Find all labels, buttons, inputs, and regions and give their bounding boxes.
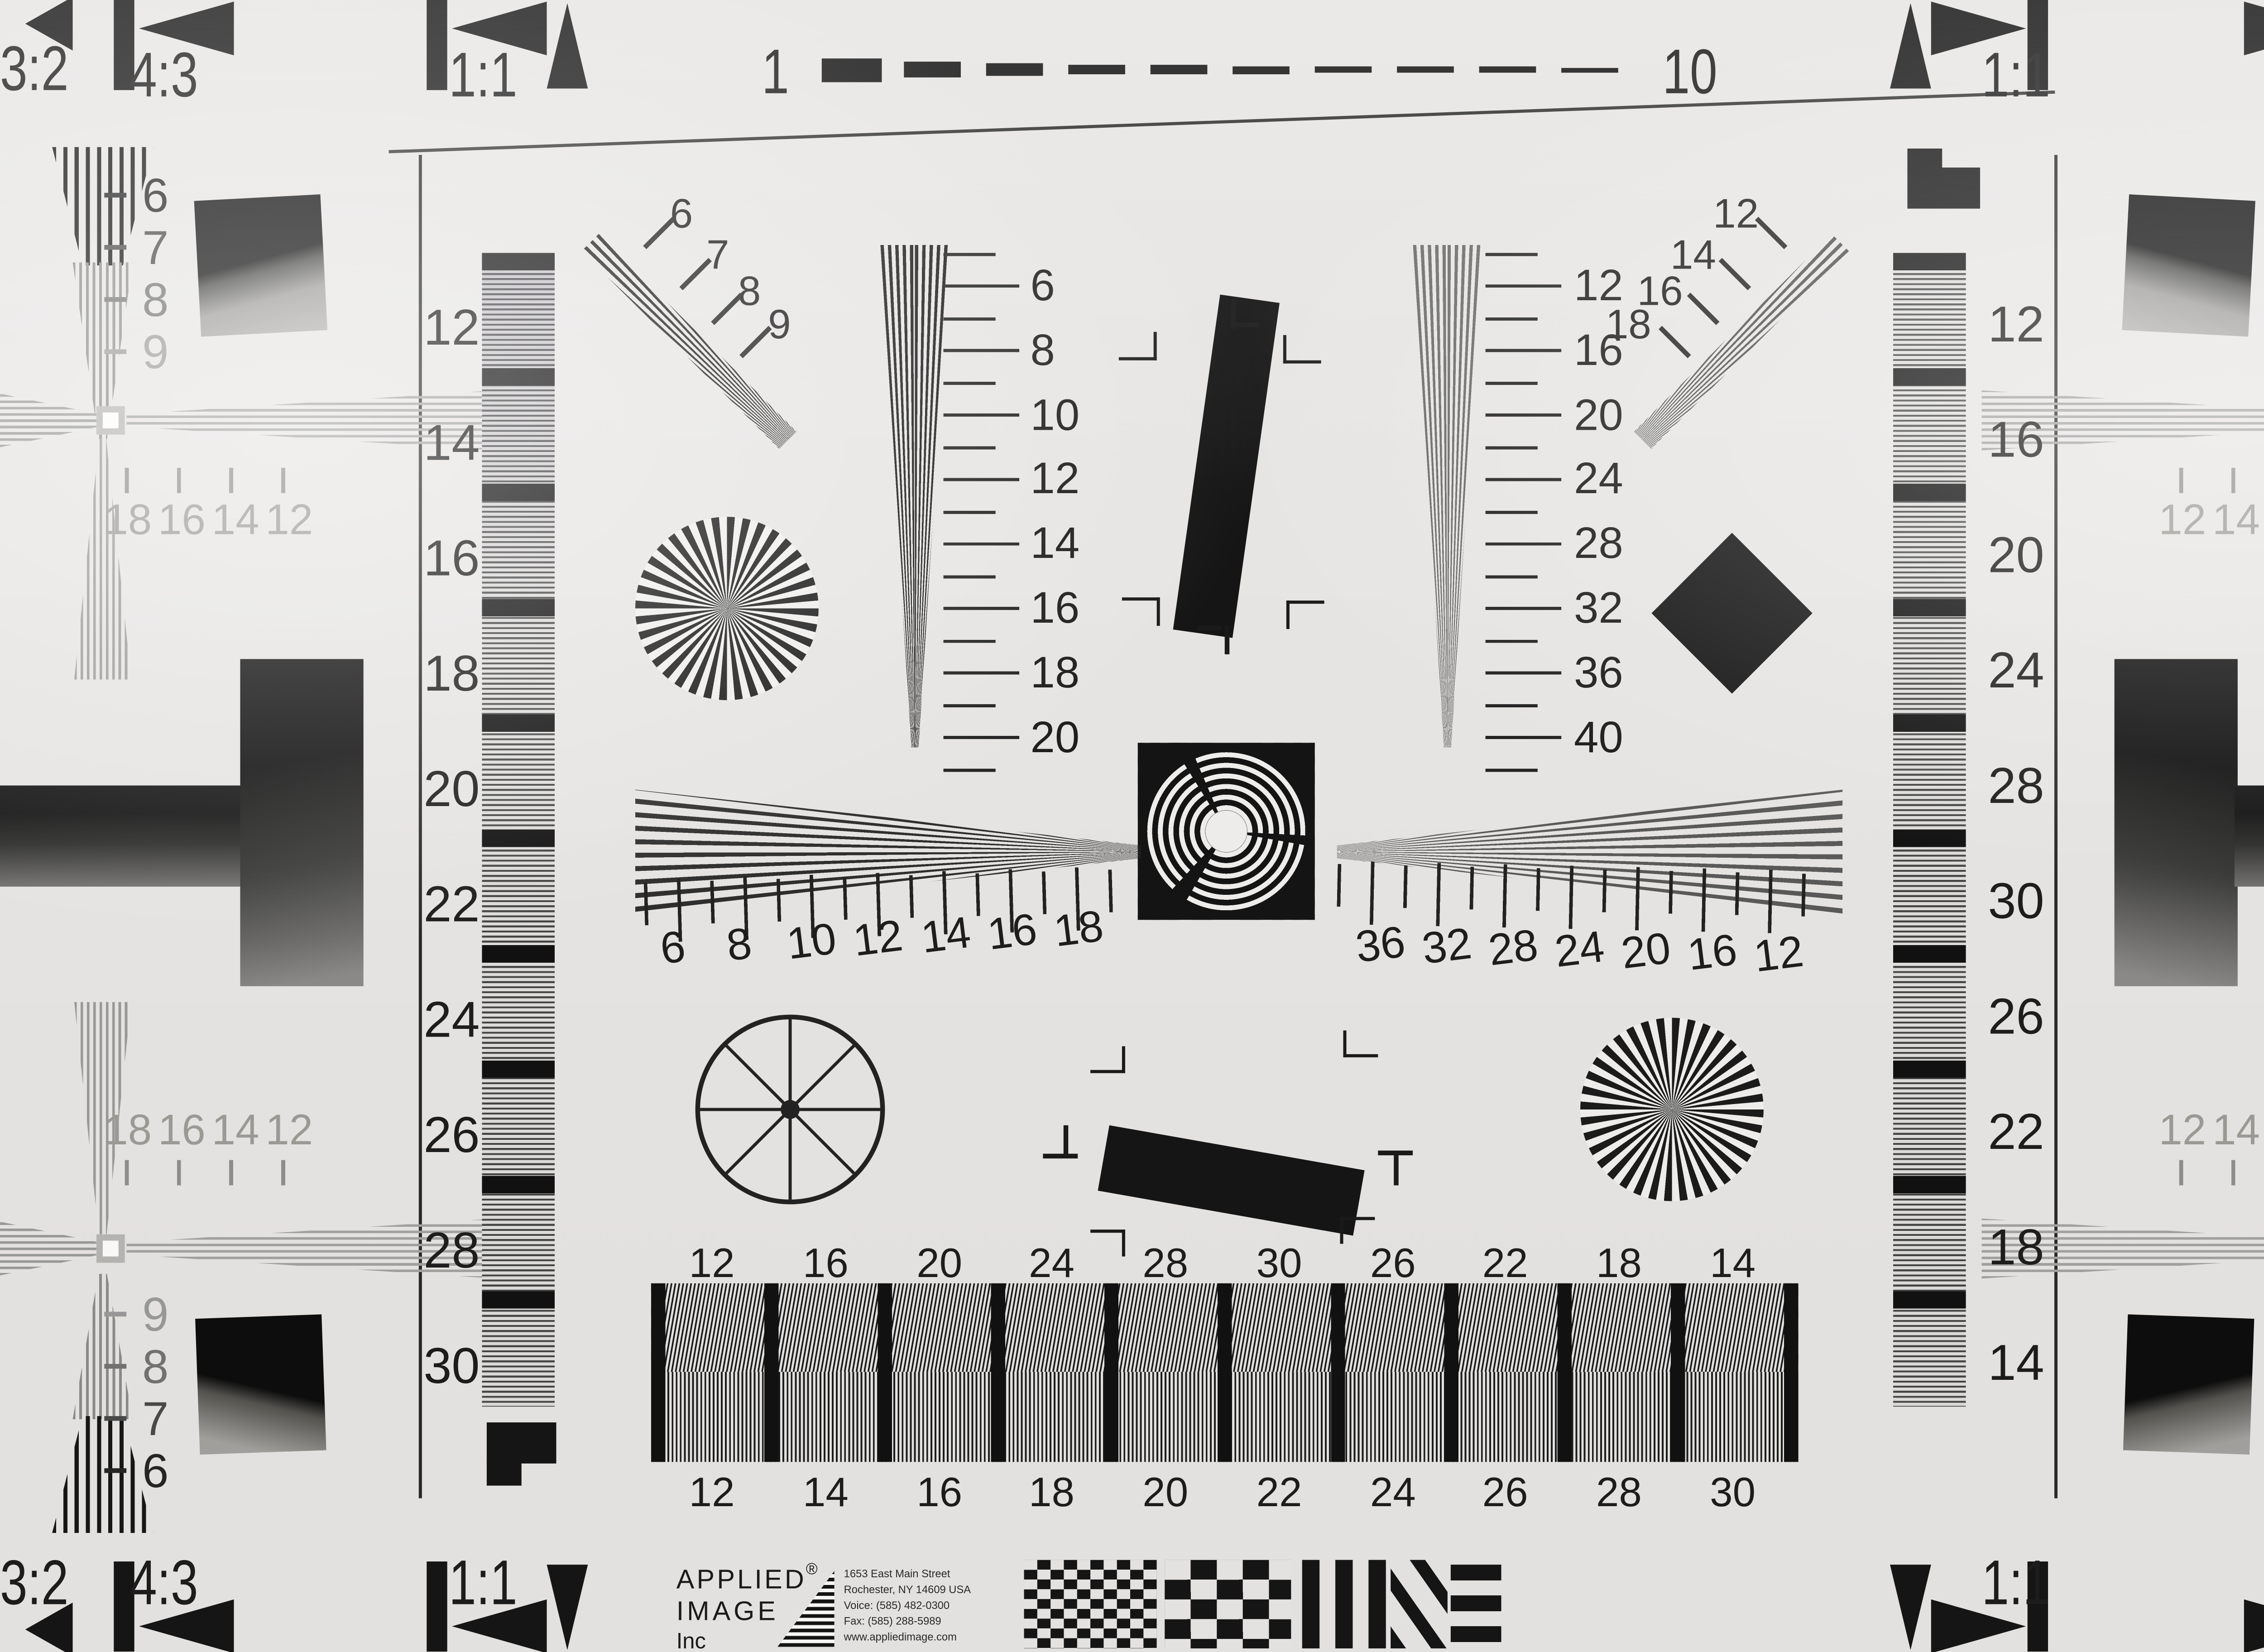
scale-dash xyxy=(822,58,882,81)
vscale-ticks-long xyxy=(944,285,1020,775)
registration-t-mark xyxy=(1064,1125,1068,1157)
ruler-label: 36 xyxy=(1353,920,1408,970)
cross-tick-label: 14 xyxy=(212,499,259,542)
aspect-arrow-icon xyxy=(139,1599,234,1652)
pattern-diagonal-stripes xyxy=(1391,1560,1448,1648)
step-label: 24 xyxy=(1988,645,2044,696)
cross-tick-label: 16 xyxy=(158,1109,206,1152)
vscale-label: 32 xyxy=(1574,586,1623,631)
step-label: 16 xyxy=(1988,414,2044,465)
spoke-circle xyxy=(696,1015,885,1205)
registration-t-mark xyxy=(1225,626,1229,654)
logo-reg-icon: ® xyxy=(806,1563,818,1579)
grating-label-top: 22 xyxy=(1482,1242,1528,1283)
ruler-label: 16 xyxy=(1685,928,1740,978)
cross-center-square xyxy=(96,1234,125,1263)
scale-end-label: 10 xyxy=(1662,41,1717,105)
logo-address-line: www.appliedimage.com xyxy=(844,1631,1018,1647)
dash-icon xyxy=(104,1468,126,1473)
step-bar-right xyxy=(1893,253,1966,1407)
wedge-tick xyxy=(1756,217,1787,249)
fan-left-icon xyxy=(0,394,98,447)
cross-row-label: 9 xyxy=(142,330,168,378)
ruler-label: 32 xyxy=(1420,922,1474,971)
registration-mark xyxy=(1090,1229,1125,1256)
fan-down-icon xyxy=(73,1274,133,1419)
logo-address-line: Voice: (585) 482-0300 xyxy=(844,1599,1018,1615)
aspect-arrow-icon xyxy=(452,1599,547,1652)
vscale-label: 14 xyxy=(1030,522,1079,566)
scale-dash xyxy=(1151,65,1208,74)
checkerboard-fine xyxy=(1024,1560,1157,1648)
step-label: 30 xyxy=(423,1340,480,1391)
registration-t-mark xyxy=(1043,1154,1078,1158)
aspect-arrow-icon xyxy=(25,1603,73,1652)
vscale-label: 28 xyxy=(1574,522,1623,566)
slant-bar-vertical xyxy=(1173,295,1280,638)
grating-label-top: 28 xyxy=(1142,1242,1188,1283)
starburst xyxy=(1580,1018,1764,1201)
grating-label-top: 30 xyxy=(1257,1242,1302,1283)
vscale-label: 20 xyxy=(1574,394,1623,438)
gloss-tbar-arm xyxy=(0,786,243,887)
step-bar-end-mark xyxy=(487,1460,522,1486)
ruler-label: 28 xyxy=(1486,923,1540,973)
step-label: 24 xyxy=(423,994,480,1045)
grating-label-bottom: 18 xyxy=(1029,1471,1074,1513)
ruler-label: 16 xyxy=(985,908,1040,957)
grating-label-top: 20 xyxy=(916,1242,962,1283)
grating-label-top: 24 xyxy=(1029,1242,1074,1283)
step-bar-end-mark xyxy=(487,1422,556,1464)
cross-row-label: 6 xyxy=(142,1449,168,1497)
aspect-label: 1:1 xyxy=(1981,1552,2050,1615)
vscale-label: 8 xyxy=(1030,329,1055,373)
aspect-label: 4:3 xyxy=(130,44,198,108)
registration-mark xyxy=(1090,1046,1125,1073)
logo-name-line1: APPLIED xyxy=(676,1566,806,1593)
pattern-vbar xyxy=(1302,1560,1319,1648)
grating-label-top: 14 xyxy=(1710,1242,1756,1283)
logo-address-line: Rochester, NY 14609 USA xyxy=(844,1584,1018,1599)
ruler-label: 20 xyxy=(1619,927,1673,976)
fan-down-icon xyxy=(52,1416,153,1533)
diagonal-wedge xyxy=(581,234,796,449)
grating-label-bottom: 28 xyxy=(1596,1471,1642,1513)
step-bar-dividers xyxy=(482,253,555,1407)
step-bar-dividers xyxy=(1893,253,1966,1407)
ruler-label: 24 xyxy=(1553,925,1607,975)
scale-dash xyxy=(1479,67,1536,72)
scale-dash xyxy=(1561,67,1618,72)
step-label: 26 xyxy=(1988,991,2044,1042)
diamond xyxy=(1651,533,1812,693)
step-bar-start-mark xyxy=(1907,149,1942,171)
center-wedge-up-icon xyxy=(1890,3,1931,88)
cross-tick-label: 16 xyxy=(158,499,206,542)
step-label: 12 xyxy=(423,302,480,353)
gloss-tbar-arm xyxy=(2235,786,2264,887)
aspect-arrow-icon xyxy=(2244,1,2264,55)
registration-mark xyxy=(1286,600,1324,629)
step-label: 20 xyxy=(1988,529,2044,580)
step-bar-start-mark xyxy=(1907,168,1980,209)
wedge-tick xyxy=(1719,258,1751,289)
registration-mark xyxy=(1340,1217,1375,1244)
grating-label-bottom: 12 xyxy=(689,1471,735,1513)
vertical-wedge xyxy=(1411,245,1484,748)
starburst xyxy=(635,517,819,700)
cross-ticks xyxy=(125,468,288,493)
scale-dash xyxy=(904,62,961,77)
ruler-label: 10 xyxy=(784,917,839,967)
registration-mark xyxy=(1122,597,1160,626)
wedge-tick xyxy=(739,326,771,358)
vscale-label: 18 xyxy=(1030,651,1079,696)
step-label: 14 xyxy=(1988,1337,2044,1388)
wedge-label: 12 xyxy=(1713,193,1759,234)
ruler-label: 12 xyxy=(1751,930,1806,980)
scale-dash xyxy=(1068,64,1125,75)
gloss-tbar-stem xyxy=(240,659,363,986)
test-chart: 3:2 4:3 1:1 1:1 4:3 3:2 1 10 3:2 4:3 1:1… xyxy=(0,0,2264,1652)
grating-label-top: 26 xyxy=(1370,1242,1416,1283)
dash-icon xyxy=(104,297,126,302)
dash-icon xyxy=(104,193,126,197)
grating-label-top: 18 xyxy=(1596,1242,1642,1283)
frame-vline-left xyxy=(419,155,422,1498)
cross-row-label: 9 xyxy=(142,1293,168,1340)
dash-icon xyxy=(104,245,126,250)
cross-row-label: 6 xyxy=(142,174,168,221)
fan-up-icon xyxy=(52,147,153,266)
wedge-tick xyxy=(1659,326,1691,358)
ruler-label: 6 xyxy=(658,925,688,972)
fan-left-icon xyxy=(0,1222,98,1276)
gloss-patch xyxy=(194,194,328,336)
registration-mark xyxy=(1343,1030,1378,1057)
logo-address: 1653 East Main Street Rochester, NY 1460… xyxy=(844,1568,1018,1647)
vscale-label: 40 xyxy=(1574,716,1623,760)
vscale-label: 24 xyxy=(1574,457,1623,501)
wedge-label: 8 xyxy=(738,270,761,312)
step-bar-left xyxy=(482,253,555,1407)
logo-address-line: 1653 East Main Street xyxy=(844,1568,1018,1584)
aspect-label: 1:1 xyxy=(449,44,517,108)
vscale-label: 16 xyxy=(1030,586,1079,631)
scale-start-label: 1 xyxy=(762,41,789,105)
cross-tick-label: 12 xyxy=(2158,1109,2206,1152)
cross-tick-label: 14 xyxy=(212,1109,259,1152)
cross-tick-label: 12 xyxy=(265,1109,313,1152)
step-label: 18 xyxy=(1988,1222,2044,1273)
gloss-patch xyxy=(195,1314,326,1455)
gloss-patch xyxy=(2122,194,2255,336)
grating-label-bottom: 24 xyxy=(1370,1471,1416,1513)
logo-name-line2: IMAGE xyxy=(676,1598,779,1624)
center-wedge-down-icon xyxy=(1890,1565,1931,1650)
step-label: 20 xyxy=(423,764,480,814)
vscale-label: 12 xyxy=(1574,264,1623,308)
vscale-label: 20 xyxy=(1030,716,1079,760)
center-wedge-up-icon xyxy=(547,3,588,88)
cross-tick-label: 18 xyxy=(104,1109,152,1152)
dash-icon xyxy=(104,1364,126,1369)
diagonal-wedge xyxy=(1634,234,1849,449)
gloss-patch xyxy=(2123,1314,2254,1455)
fan-down-icon xyxy=(74,438,131,680)
aspect-arrow-icon xyxy=(2244,1599,2264,1652)
cross-tick-label: 14 xyxy=(2212,1109,2260,1152)
vscale-label: 16 xyxy=(1574,329,1623,373)
pattern-vbar xyxy=(1368,1560,1386,1648)
vscale-label: 12 xyxy=(1030,457,1079,501)
grating-label-bottom: 26 xyxy=(1482,1471,1528,1513)
cross-tick-label: 12 xyxy=(265,499,313,542)
aspect-bar xyxy=(427,0,447,90)
step-label: 28 xyxy=(1988,760,2044,811)
frame-diagonal-line xyxy=(389,91,2055,154)
cross-ticks xyxy=(125,1160,288,1186)
aspect-bar xyxy=(427,1561,447,1652)
grating-label-bottom: 30 xyxy=(1710,1471,1756,1513)
cross-tick-label: 18 xyxy=(104,499,152,542)
grating-label-bottom: 22 xyxy=(1257,1471,1302,1513)
pattern-vbar xyxy=(1335,1560,1353,1648)
dash-icon xyxy=(104,1416,126,1421)
cross-row-label: 7 xyxy=(142,226,168,274)
cross-center-square xyxy=(96,406,125,435)
dash-icon xyxy=(104,349,126,354)
logo-name-line3: Inc xyxy=(676,1629,706,1652)
registration-t-mark xyxy=(1234,322,1260,327)
logo-address-line: Fax: (585) 288-5989 xyxy=(844,1615,1018,1631)
wedge-label: 6 xyxy=(670,193,693,234)
vscale-ticks-long xyxy=(1486,285,1562,775)
scale-dash xyxy=(1315,66,1372,73)
ruler-label: 18 xyxy=(1051,904,1106,954)
step-label: 22 xyxy=(1988,1106,2044,1157)
wedge-tick xyxy=(1688,293,1719,324)
center-wedge-down-icon xyxy=(547,1565,588,1650)
scale-dash xyxy=(1233,66,1290,73)
cross-row-label: 7 xyxy=(142,1397,168,1445)
step-label: 26 xyxy=(423,1109,480,1160)
vscale-label: 10 xyxy=(1030,394,1079,438)
grating-label-bottom: 20 xyxy=(1142,1471,1188,1513)
ruler-label: 8 xyxy=(724,922,754,969)
pattern-hbars xyxy=(1451,1565,1501,1650)
cross-row-label: 8 xyxy=(142,278,168,326)
vscale-label: 6 xyxy=(1030,264,1055,308)
grating-dividers xyxy=(651,1283,1799,1462)
step-label: 28 xyxy=(423,1225,480,1276)
gloss-tbar-stem xyxy=(2115,659,2238,986)
scale-dash xyxy=(986,63,1043,76)
ruler-label: 12 xyxy=(851,914,905,964)
grating-label-top: 16 xyxy=(803,1242,849,1283)
ruler-label: 14 xyxy=(919,911,973,960)
scale-dash xyxy=(1397,67,1454,73)
cross-ticks xyxy=(2179,1160,2264,1186)
step-label: 18 xyxy=(423,648,480,699)
wedge-label: 9 xyxy=(768,303,791,345)
registration-t-mark xyxy=(1198,626,1221,630)
cross-row-label: 8 xyxy=(142,1345,168,1393)
cross-ticks xyxy=(2179,468,2264,493)
step-label: 30 xyxy=(1988,875,2044,926)
step-label: 16 xyxy=(423,533,480,583)
step-label: 22 xyxy=(423,879,480,929)
dash-icon xyxy=(104,1312,126,1316)
focus-target xyxy=(1138,743,1315,920)
spoke-hub xyxy=(781,1100,800,1119)
grating-label-bottom: 14 xyxy=(803,1471,849,1513)
registration-mark xyxy=(1119,332,1157,360)
frame-vline-right xyxy=(2054,155,2058,1498)
grating-label-bottom: 16 xyxy=(916,1471,962,1513)
step-label: 12 xyxy=(1988,299,2044,350)
aspect-label: 1:1 xyxy=(1981,44,2050,108)
grating-block xyxy=(651,1283,1799,1462)
grating-label-top: 12 xyxy=(689,1242,735,1283)
registration-mark xyxy=(1283,335,1321,364)
wedge-label: 7 xyxy=(706,234,729,275)
checkerboard-coarse xyxy=(1165,1560,1291,1648)
aspect-label: 3:2 xyxy=(0,38,68,101)
vscale-label: 36 xyxy=(1574,651,1623,696)
vertical-wedge xyxy=(878,245,951,748)
step-label: 14 xyxy=(423,417,480,468)
cross-tick-label: 14 xyxy=(2212,499,2260,542)
cross-tick-label: 12 xyxy=(2158,499,2206,542)
slant-bar-horizontal xyxy=(1098,1125,1365,1236)
registration-t-mark xyxy=(1394,1154,1398,1186)
